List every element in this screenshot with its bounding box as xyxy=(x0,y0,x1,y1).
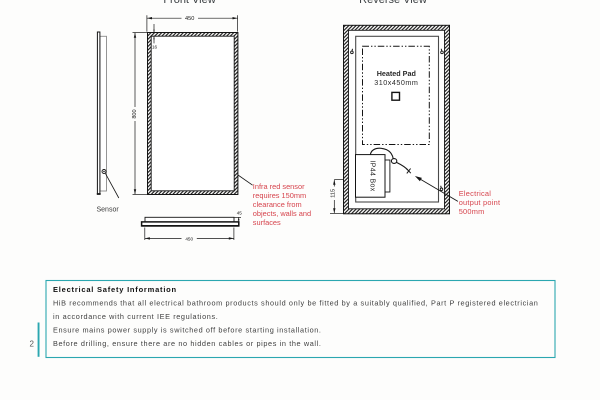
svg-text:Heated Pad: Heated Pad xyxy=(377,69,416,78)
svg-text:800: 800 xyxy=(132,109,138,118)
svg-text:450: 450 xyxy=(185,16,194,22)
svg-text:450: 450 xyxy=(185,236,193,241)
svg-text:in accordance with current IEE: in accordance with current IEE regulatio… xyxy=(53,312,218,321)
svg-text:Front View: Front View xyxy=(163,0,215,6)
svg-text:Electrical Safety Information: Electrical Safety Information xyxy=(53,285,177,294)
svg-text:HiB recommends that all electr: HiB recommends that all electrical bathr… xyxy=(53,298,538,307)
svg-text:2: 2 xyxy=(30,339,35,348)
svg-text:16: 16 xyxy=(152,45,158,50)
svg-text:115: 115 xyxy=(331,189,337,198)
svg-text:Ensure mains power supply is s: Ensure mains power supply is switched of… xyxy=(53,326,322,335)
svg-text:310x450mm: 310x450mm xyxy=(374,78,418,87)
svg-text:45: 45 xyxy=(237,210,243,215)
svg-text:Before drilling, ensure there: Before drilling, ensure there are no hid… xyxy=(53,339,322,348)
svg-text:Reverse View: Reverse View xyxy=(359,0,427,6)
svg-text:IP44 Box: IP44 Box xyxy=(369,160,376,191)
svg-text:Sensor: Sensor xyxy=(97,206,120,213)
